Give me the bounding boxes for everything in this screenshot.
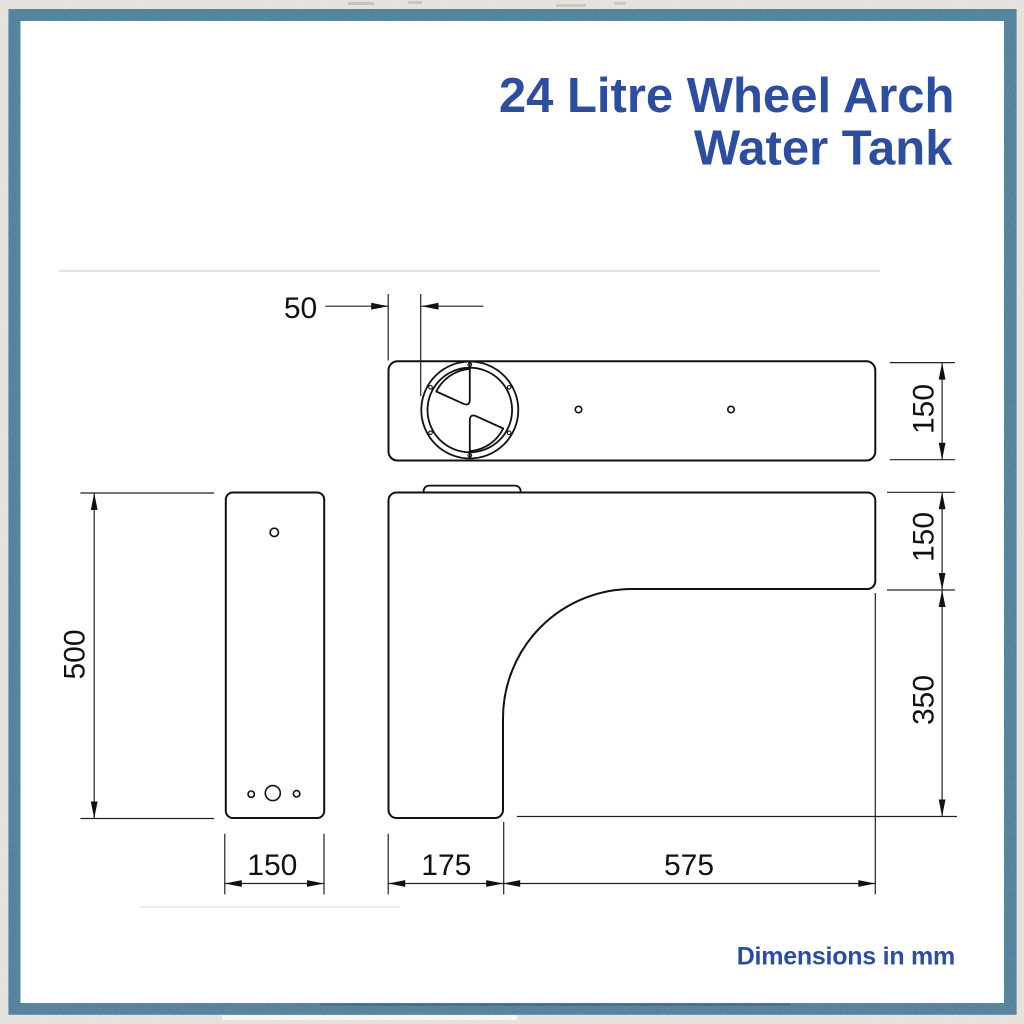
svg-text:150: 150 bbox=[247, 849, 297, 882]
svg-text:500: 500 bbox=[59, 629, 92, 679]
svg-text:50: 50 bbox=[284, 292, 317, 325]
svg-text:350: 350 bbox=[908, 675, 941, 725]
svg-text:575: 575 bbox=[664, 849, 714, 882]
svg-text:175: 175 bbox=[421, 849, 471, 882]
svg-text:150: 150 bbox=[908, 384, 941, 434]
svg-text:Water Tank: Water Tank bbox=[694, 122, 953, 176]
svg-text:150: 150 bbox=[908, 512, 941, 562]
svg-text:Dimensions in mm: Dimensions in mm bbox=[737, 943, 955, 971]
svg-text:24 Litre Wheel Arch: 24 Litre Wheel Arch bbox=[499, 69, 955, 123]
